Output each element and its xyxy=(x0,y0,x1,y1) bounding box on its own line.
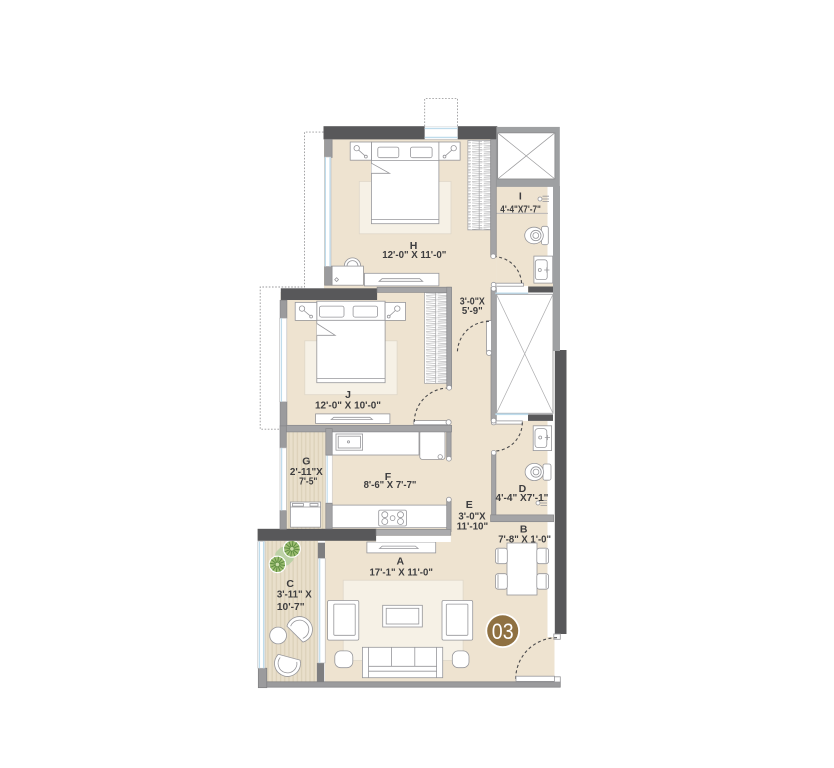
svg-text:8'-6" X 7'-7": 8'-6" X 7'-7" xyxy=(364,480,417,491)
svg-text:17'-1" X 11'-0": 17'-1" X 11'-0" xyxy=(369,568,433,579)
svg-text:7'-5": 7'-5" xyxy=(299,476,318,487)
svg-text:4'-4" X7'-1": 4'-4" X7'-1" xyxy=(496,493,549,504)
svg-text:J: J xyxy=(345,389,351,401)
svg-text:03: 03 xyxy=(492,619,514,644)
svg-text:G: G xyxy=(302,456,310,468)
svg-text:10'-7": 10'-7" xyxy=(277,602,305,613)
svg-text:A: A xyxy=(397,556,405,568)
svg-text:12'-0" X 10'-0": 12'-0" X 10'-0" xyxy=(315,401,381,412)
svg-text:E: E xyxy=(466,499,473,511)
svg-text:I: I xyxy=(519,191,522,203)
svg-text:12'-0" X 11'-0": 12'-0" X 11'-0" xyxy=(382,250,446,261)
svg-text:11'-10": 11'-10" xyxy=(457,521,489,532)
svg-text:C: C xyxy=(286,578,294,590)
svg-text:3'-11" X: 3'-11" X xyxy=(277,590,312,601)
svg-text:4'-4"X7'-7": 4'-4"X7'-7" xyxy=(500,204,541,215)
svg-text:7'-8" X 1'-0": 7'-8" X 1'-0" xyxy=(498,535,551,546)
svg-text:5'-9": 5'-9" xyxy=(462,306,483,317)
